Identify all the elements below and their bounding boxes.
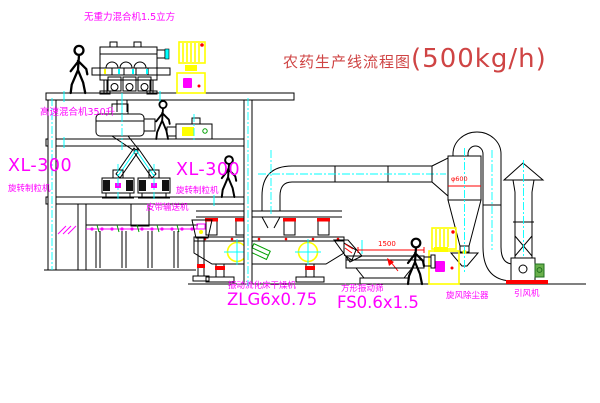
- belt-conveyor-label: 皮带输送机: [146, 204, 189, 213]
- cyclone-diameter-text: φ600: [451, 176, 468, 183]
- granulator-right: [138, 164, 170, 199]
- drawing-title: 农药生产线流程图(500kg/h): [283, 44, 547, 74]
- building-structure: [44, 91, 586, 284]
- granulator-right-name-label: 旋转制粒机: [176, 187, 219, 196]
- cyclone-label: 旋风除尘器: [446, 292, 489, 301]
- crosshair-marks: [224, 239, 321, 265]
- fan-label: 引风机: [514, 290, 540, 299]
- induced-draft-fan: [506, 258, 548, 284]
- title-chinese: 农药生产线流程图: [283, 53, 411, 71]
- cyclone: [432, 148, 481, 274]
- dryer-feet: [206, 264, 324, 282]
- control-cabinet-1: [177, 42, 205, 93]
- title-capacity: (500kg/h): [411, 44, 547, 74]
- granulator-left-name-label: 旋转制粒机: [8, 185, 51, 194]
- sieve-model-label: FS0.6x1.5: [337, 295, 419, 312]
- gravity-mixer-label: 无重力混合机1.5立方: [84, 13, 175, 23]
- granulator-left-model-label: XL-300: [8, 158, 72, 176]
- cyclone-outlet-duct: [453, 132, 513, 281]
- y-splitter-chute: [116, 148, 156, 178]
- motor-detail: [250, 244, 270, 260]
- sieve-dimension-text: 1500: [378, 241, 396, 248]
- control-cabinet-2: [429, 228, 459, 284]
- zero-gravity-mixer: [92, 42, 170, 116]
- granulator-right-model-label: XL-300: [176, 162, 240, 180]
- belt-conveyor: [86, 225, 198, 268]
- dryer-model-label: ZLG6x0.75: [227, 292, 317, 309]
- high-speed-mixer-label: 高速混合机350升: [40, 108, 115, 118]
- exhaust-duct: [258, 150, 446, 215]
- building-column-right: [244, 98, 252, 286]
- granulator-left: [102, 164, 134, 199]
- cad-flow-diagram: 农药生产线流程图(500kg/h) 无重力混合机1.5立方 高速混合机350升 …: [0, 0, 600, 403]
- screw-feeder: [167, 114, 212, 141]
- fluid-bed-dryer: [192, 211, 356, 282]
- hatch-marks: [58, 226, 76, 234]
